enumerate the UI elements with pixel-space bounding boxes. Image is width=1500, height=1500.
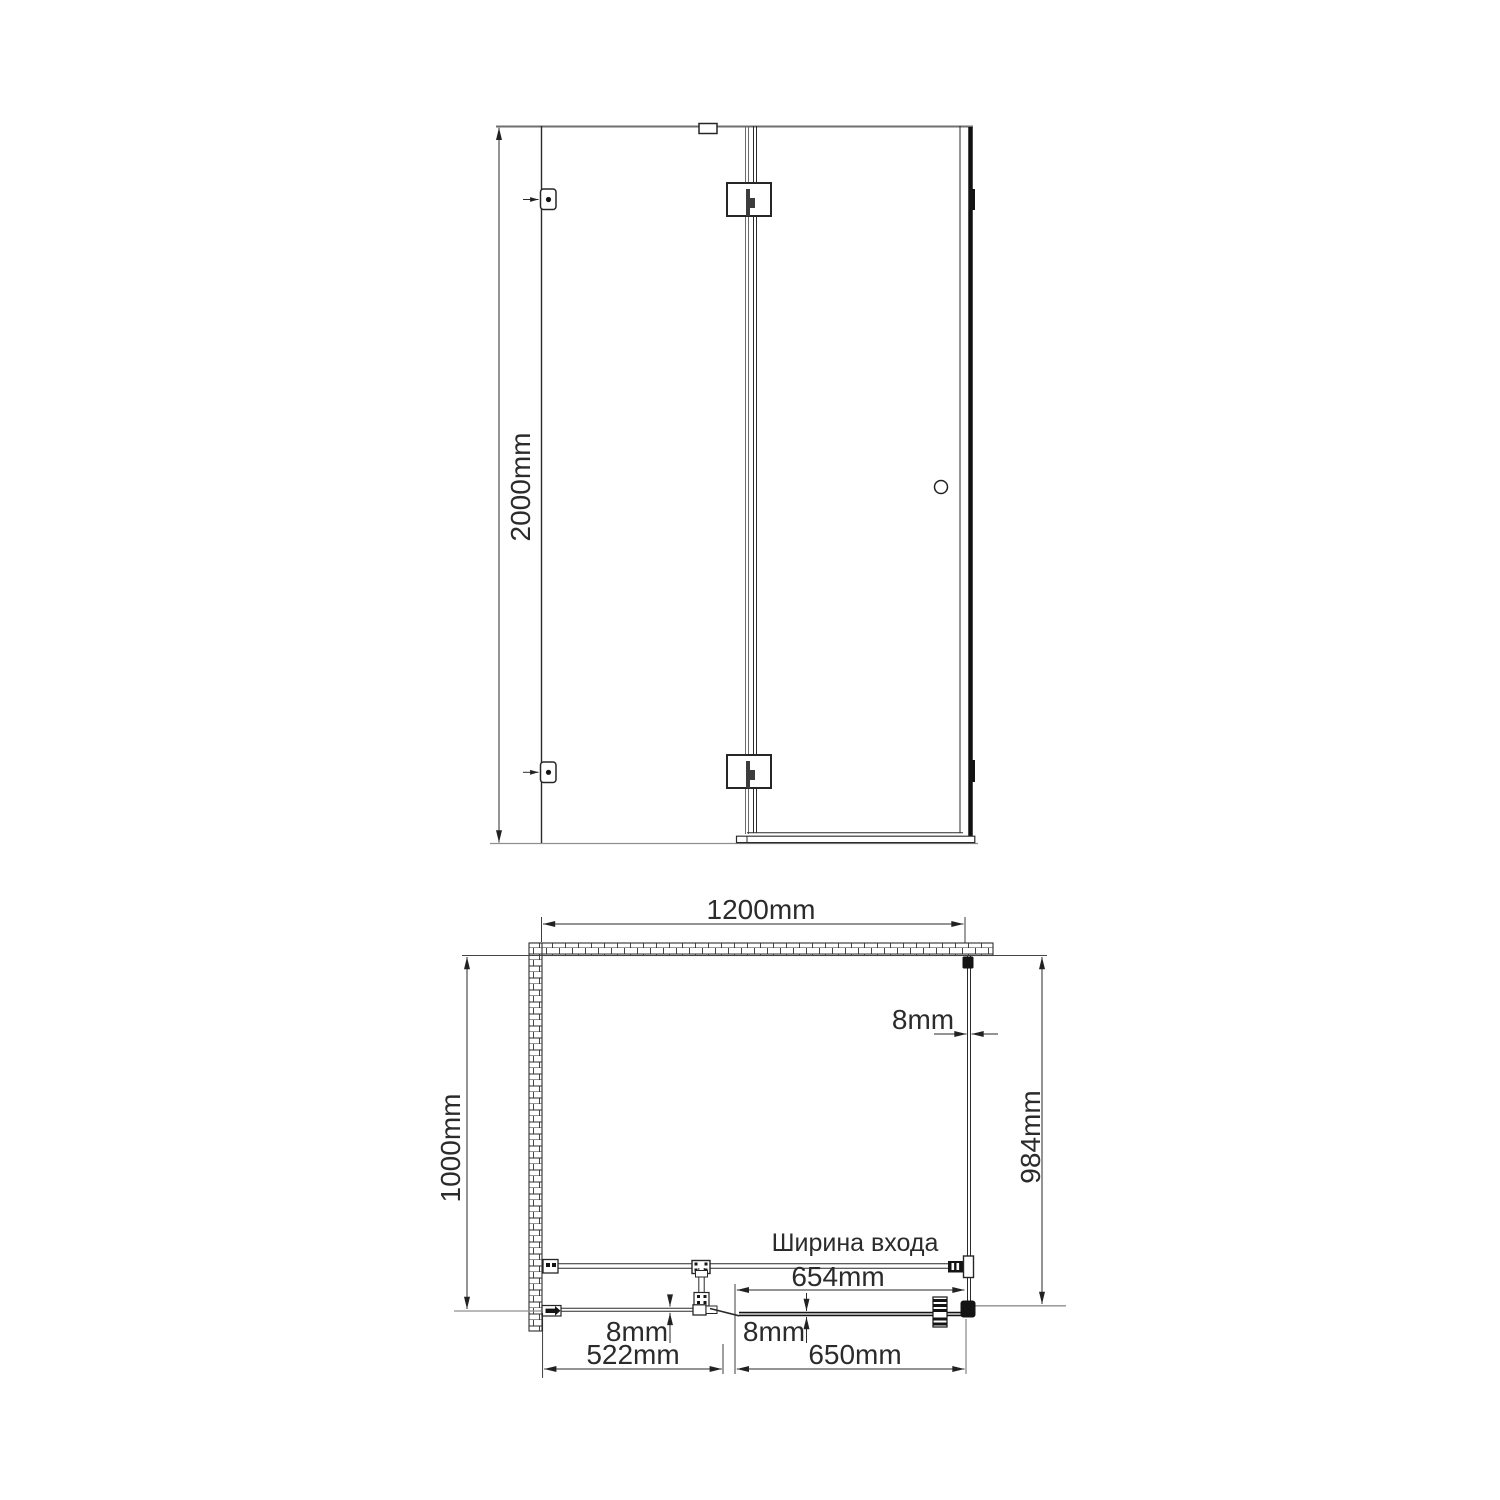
door-hinge-top	[727, 183, 771, 216]
door-handle-plan	[933, 1297, 947, 1327]
door-glass-thickness-dimension: 8mm	[743, 1293, 807, 1347]
width-dimension-label: 1200mm	[707, 894, 816, 925]
depth-dimension-1000: 1000mm	[435, 957, 541, 1311]
door-width-label: 650mm	[808, 1339, 901, 1370]
side-glass-thickness-dimension: 8mm	[892, 1004, 998, 1035]
fixed-panel-width-label: 522mm	[586, 1339, 679, 1370]
fixed-panel-elevation	[542, 126, 749, 843]
wall-anchor-bottom	[523, 762, 556, 783]
plan-view: 1200mm 1000mm 8mm 984mm	[435, 894, 1066, 1378]
front-elevation-view: 2000mm	[490, 124, 978, 844]
door-panel-elevation	[754, 126, 961, 833]
door-hinge-bottom	[727, 755, 771, 788]
bottom-sill	[737, 833, 975, 843]
entrance-width-label: 654mm	[791, 1261, 884, 1292]
top-wall-hatched	[530, 943, 993, 956]
door-glass-thickness-label: 8mm	[743, 1316, 805, 1347]
technical-drawing-canvas: 2000mm	[0, 0, 1500, 1500]
side-panel-edge-elevation	[969, 127, 976, 843]
door-handle-knob	[935, 481, 948, 494]
height-dimension-2000: 2000mm	[499, 128, 536, 843]
side-panel-wall-bracket-bottom	[969, 760, 976, 782]
bar-end-clamp	[948, 1261, 963, 1273]
stabilizer-bar	[543, 1256, 974, 1278]
depth-dimension-label: 1000mm	[435, 1094, 466, 1203]
side-panel-wall-bracket-plan	[963, 957, 974, 969]
hinge-post-plan	[694, 1268, 709, 1306]
anchor-screw	[546, 770, 551, 775]
side-panel-wall-bracket-top	[969, 189, 976, 210]
side-panel-depth-dimension-984: 984mm	[975, 957, 1066, 1306]
corner-bracket-plan	[961, 1301, 976, 1318]
height-dimension-label: 2000mm	[505, 433, 536, 542]
top-glass-clamp	[699, 124, 717, 134]
left-wall-hatched	[529, 943, 542, 1331]
bar-side-panel-clamp	[964, 1256, 974, 1278]
side-panel-plan	[963, 956, 974, 1303]
side-glass-thickness-label: 8mm	[892, 1004, 954, 1035]
wall-anchor-top	[523, 189, 556, 210]
drawing-page: 2000mm	[0, 0, 1500, 1500]
anchor-screw	[546, 197, 551, 202]
side-panel-depth-label: 984mm	[1015, 1090, 1046, 1183]
entrance-width-caption: Ширина входа	[772, 1229, 939, 1257]
post-lower-fitting	[694, 1293, 709, 1307]
door-hinge-plan	[693, 1305, 739, 1316]
